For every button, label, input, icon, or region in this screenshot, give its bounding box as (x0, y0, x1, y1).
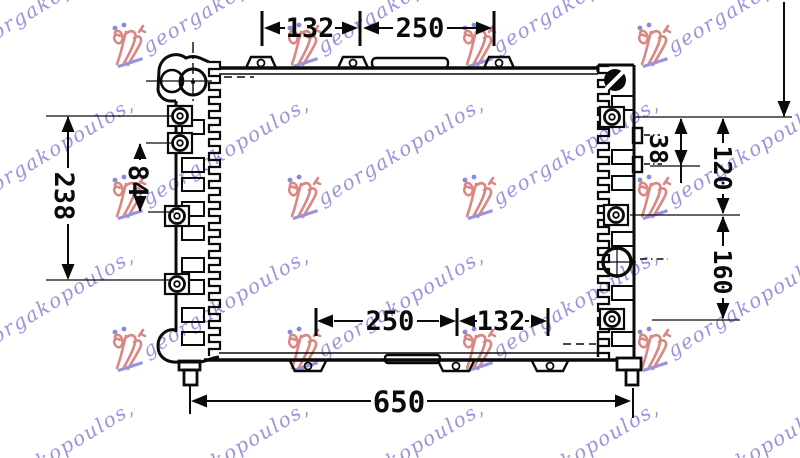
dimension-annotations: 132 250 238 84 38 120 160 250 132 650 (46, 2, 792, 419)
dim-label-right-120: 120 (708, 145, 737, 190)
dim-label-left-84: 84 (122, 165, 153, 198)
right-tank (598, 65, 668, 385)
radiator-technical-drawing: 132 250 238 84 38 120 160 250 132 650 (0, 0, 800, 458)
dim-label-top-250: 250 (396, 13, 445, 44)
radiator-diagram-page: georgakopoulos,georgakopoulos,georgakopo… (0, 0, 800, 458)
dim-label-left-238: 238 (48, 172, 79, 221)
dim-label-top-132: 132 (286, 13, 335, 44)
dim-label-bottom-132: 132 (477, 306, 526, 337)
dim-label-right-160: 160 (708, 249, 737, 294)
dim-label-overall-650: 650 (373, 385, 425, 419)
bottom-mount-tabs (290, 355, 568, 371)
dim-label-right-38: 38 (644, 134, 673, 164)
dim-label-bottom-250: 250 (366, 306, 415, 337)
